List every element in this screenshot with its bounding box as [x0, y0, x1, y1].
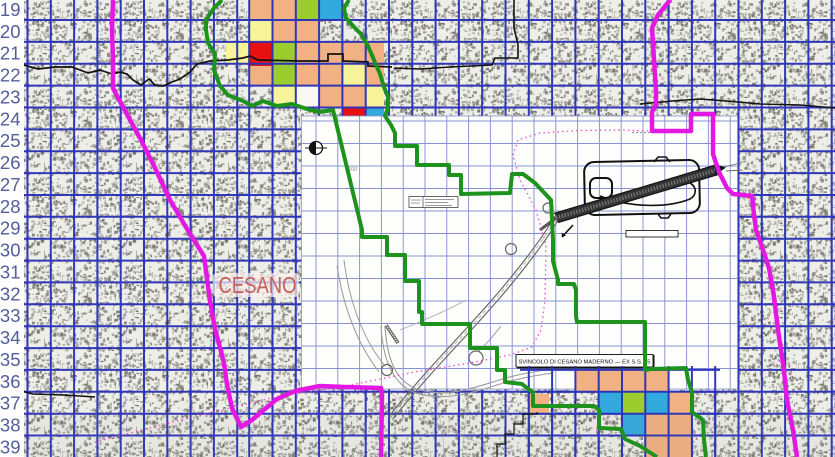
svg-text:CESANO: CESANO [219, 272, 297, 298]
svg-text:39: 39 [0, 436, 21, 457]
svg-text:38: 38 [0, 415, 21, 436]
svg-text:27: 27 [0, 174, 21, 195]
svg-text:30: 30 [0, 240, 21, 261]
svg-text:32: 32 [0, 283, 21, 304]
svg-text:34: 34 [0, 327, 21, 348]
svg-text:SVINCOLO DI CESANO MADERNO — E: SVINCOLO DI CESANO MADERNO — EX S.S. 35 [518, 360, 650, 366]
svg-text:31: 31 [0, 261, 21, 282]
svg-text:26: 26 [0, 152, 21, 173]
svg-text:28: 28 [0, 196, 21, 217]
svg-text:37: 37 [0, 393, 21, 414]
svg-text:25: 25 [0, 130, 21, 151]
svg-text:20: 20 [0, 21, 21, 42]
svg-text:36: 36 [0, 371, 21, 392]
svg-text:29: 29 [0, 218, 21, 239]
svg-text:35: 35 [0, 349, 21, 370]
svg-text:23: 23 [0, 87, 21, 108]
svg-text:21: 21 [0, 43, 21, 64]
svg-text:19: 19 [0, 0, 21, 20]
svg-text:24: 24 [0, 108, 21, 129]
svg-text:22: 22 [0, 65, 21, 86]
svg-text:33: 33 [0, 305, 21, 326]
